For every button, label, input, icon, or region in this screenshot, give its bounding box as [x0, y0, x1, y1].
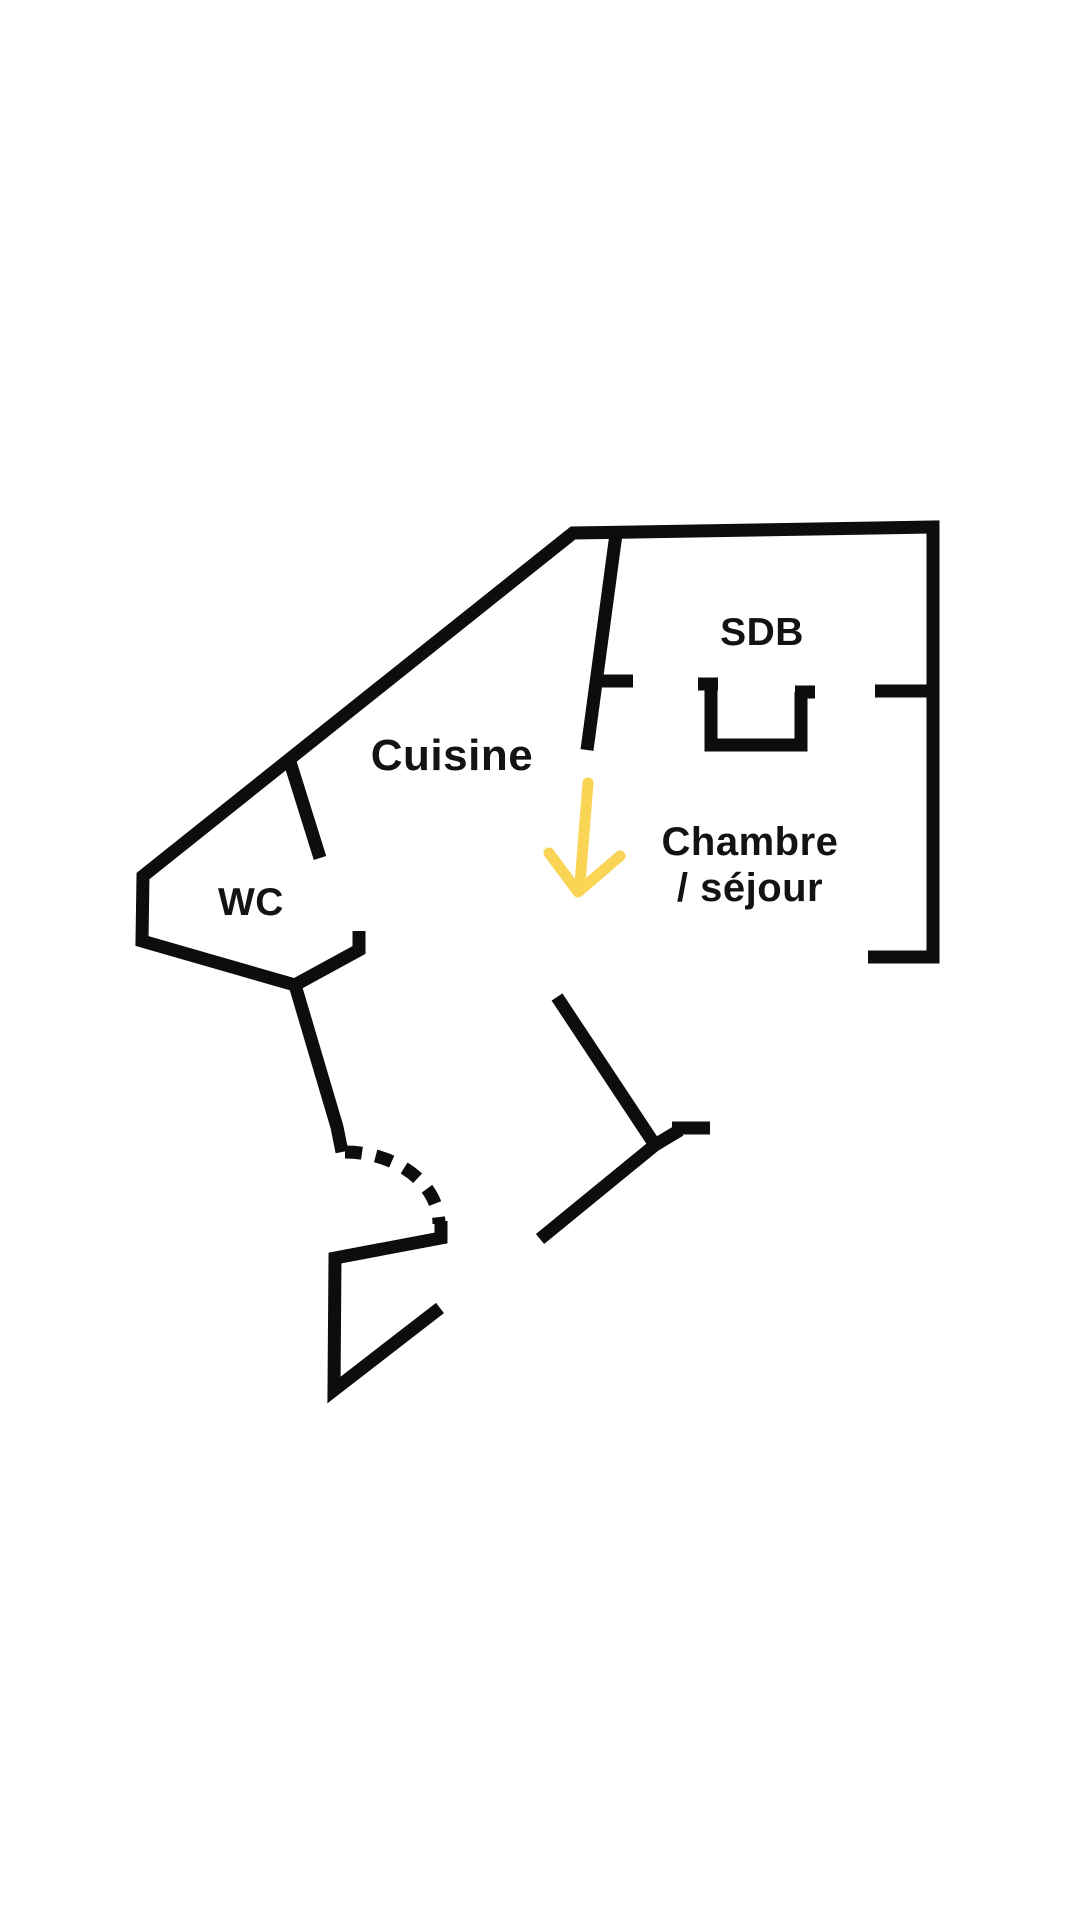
bathtub-fixture: [711, 684, 801, 745]
wall-wc-cuisine-divider: [290, 762, 320, 858]
room-label-cuisine: Cuisine: [371, 731, 533, 780]
wall-entry-vestibule: [334, 1221, 441, 1390]
room-label-chambre-line2: / séjour: [677, 866, 823, 910]
floor-plan-drawing: SDB Cuisine WC Chambre / séjour: [0, 0, 1080, 1920]
room-label-chambre-line1: Chambre: [662, 820, 839, 864]
wall-chambre-west: [557, 997, 655, 1145]
floor-plan-page: SDB Cuisine WC Chambre / séjour: [0, 0, 1080, 1920]
entry-door-swing-arc: [345, 1152, 439, 1224]
wall-entry-chambre: [540, 1130, 680, 1239]
down-arrow-shaft: [580, 783, 588, 884]
room-label-wc: WC: [218, 881, 284, 924]
room-label-sdb: SDB: [720, 611, 804, 654]
walls-group: [142, 527, 933, 1390]
down-arrow-icon: [549, 783, 620, 892]
wall-sdb-west: [587, 534, 616, 750]
room-labels-group: SDB Cuisine WC Chambre / séjour: [218, 611, 838, 924]
wall-wc-door-jamb: [293, 931, 359, 986]
